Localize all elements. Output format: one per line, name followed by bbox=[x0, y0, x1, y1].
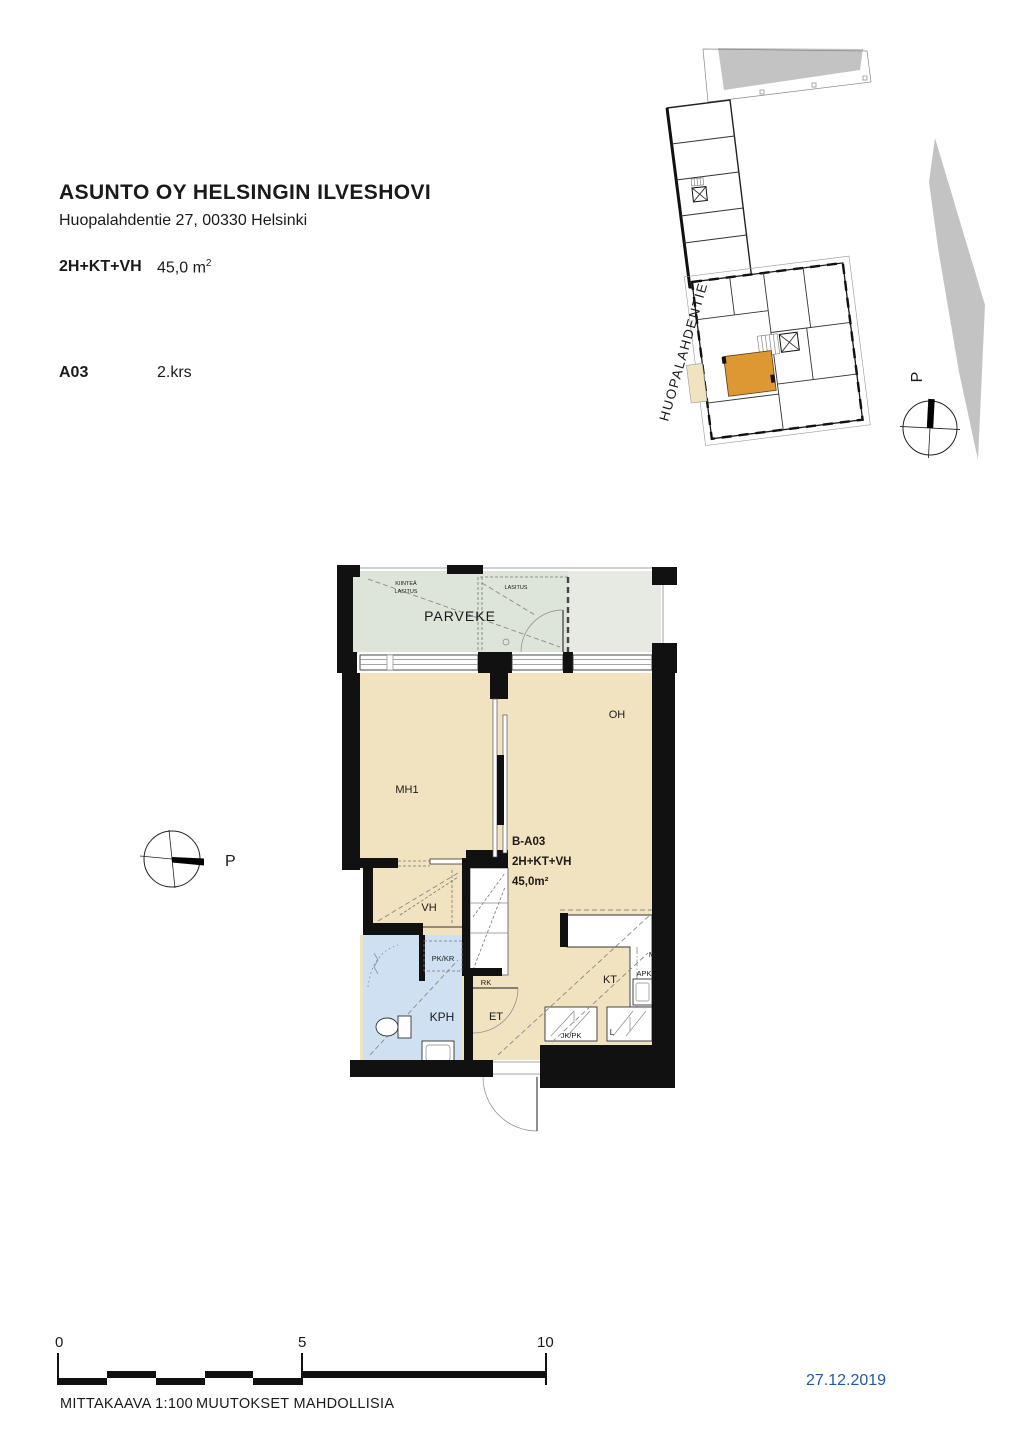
room-label-oh: OH bbox=[609, 709, 626, 721]
area-superscript: 2 bbox=[206, 258, 212, 269]
entry-door-arc bbox=[483, 1077, 537, 1131]
site-plan: HUOPALAHDENTIE P bbox=[620, 20, 1024, 490]
fixture-label-jkpk: JK/PK bbox=[561, 1031, 582, 1040]
room-label-kt: KT bbox=[603, 974, 617, 986]
fixture-label-l: L bbox=[610, 1028, 615, 1037]
site-post bbox=[812, 83, 816, 87]
glazing-fixed-label: KIINTEÄ bbox=[395, 580, 417, 587]
plan-compass-icon: P bbox=[130, 808, 260, 918]
document-address: Huopalahdentie 27, 00330 Helsinki bbox=[59, 212, 307, 230]
scale-tick-0: 0 bbox=[55, 1334, 63, 1351]
svg-text:LASITUS: LASITUS bbox=[395, 589, 418, 595]
site-building-north bbox=[718, 48, 863, 90]
wall-right bbox=[652, 673, 675, 1088]
room-label-kph: KPH bbox=[430, 1010, 455, 1024]
wall bbox=[447, 565, 483, 574]
wall-mh1-bottom bbox=[360, 858, 398, 868]
floor-plan-document: ASUNTO OY HELSINGIN ILVESHOVI Huopalahde… bbox=[0, 0, 1024, 1448]
scale-bar: 0 5 10 bbox=[45, 1325, 565, 1390]
unit-code: A03 bbox=[59, 364, 88, 382]
room-label-parveke: PARVEKE bbox=[424, 608, 496, 624]
scale-tick-10: 10 bbox=[537, 1334, 554, 1351]
wall bbox=[466, 850, 508, 868]
site-road-wedge bbox=[929, 138, 985, 460]
wall bbox=[338, 652, 357, 673]
wall bbox=[464, 975, 473, 1065]
unit-info-area: 45,0m² bbox=[512, 876, 549, 888]
wall bbox=[462, 858, 470, 976]
unit-info-type: 2H+KT+VH bbox=[512, 856, 571, 868]
fixture-label-pkkr: PK/KR bbox=[432, 954, 455, 963]
document-date: 27.12.2019 bbox=[806, 1372, 886, 1390]
balcony-neighbor bbox=[568, 571, 661, 652]
disclaimer-text: MUUTOKSET MAHDOLLISIA bbox=[196, 1396, 394, 1412]
wall-bottom bbox=[350, 1060, 493, 1077]
fixture-label-rk: RK bbox=[481, 978, 491, 987]
unit-info-code: B-A03 bbox=[512, 836, 545, 848]
apartment-floor-plan: KIINTEÄ LASITUS LASITUS PARVEKE MH1 OH B… bbox=[330, 555, 680, 1135]
unit-floor: 2.krs bbox=[157, 364, 192, 382]
toilet-icon bbox=[376, 1016, 411, 1038]
north-compass-icon bbox=[898, 397, 961, 459]
highlighted-unit bbox=[724, 351, 777, 397]
room-label-mh1: MH1 bbox=[395, 784, 418, 796]
window bbox=[573, 655, 652, 670]
apartment-type-row: 2H+KT+VH bbox=[59, 258, 142, 276]
document-title: ASUNTO OY HELSINGIN ILVESHOVI bbox=[59, 181, 431, 205]
exterior-notch bbox=[342, 870, 363, 935]
wall-pier bbox=[563, 652, 573, 673]
window bbox=[512, 655, 563, 670]
wall-kph-top bbox=[363, 923, 423, 935]
compass-north-label: P bbox=[225, 853, 236, 870]
window bbox=[360, 655, 478, 670]
closet-strip bbox=[470, 868, 508, 975]
wall-left bbox=[342, 673, 360, 870]
scale-tick-5: 5 bbox=[298, 1334, 306, 1351]
wall-stub bbox=[560, 913, 568, 947]
entry-opening bbox=[493, 1060, 540, 1077]
scale-text: MITTAKAAVA 1:100 bbox=[60, 1396, 193, 1412]
fixture-label-m: M bbox=[649, 950, 655, 959]
room-label-vh: VH bbox=[421, 902, 436, 914]
apartment-area: 45,0 m2 bbox=[157, 258, 211, 277]
wall bbox=[462, 968, 502, 976]
site-post bbox=[760, 90, 764, 94]
glazing-label: LASITUS bbox=[505, 585, 528, 591]
wall bbox=[652, 643, 677, 673]
room-label-et: ET bbox=[489, 1011, 503, 1023]
sliding-door-leaf bbox=[430, 859, 466, 864]
fixture-label-apk: APK bbox=[636, 969, 651, 978]
site-post bbox=[863, 76, 867, 80]
compass-north-label: P bbox=[909, 372, 926, 383]
wall bbox=[652, 567, 677, 585]
site-building-wing bbox=[667, 100, 752, 288]
apartment-type: 2H+KT+VH bbox=[59, 258, 142, 275]
wall-pier bbox=[478, 652, 512, 673]
